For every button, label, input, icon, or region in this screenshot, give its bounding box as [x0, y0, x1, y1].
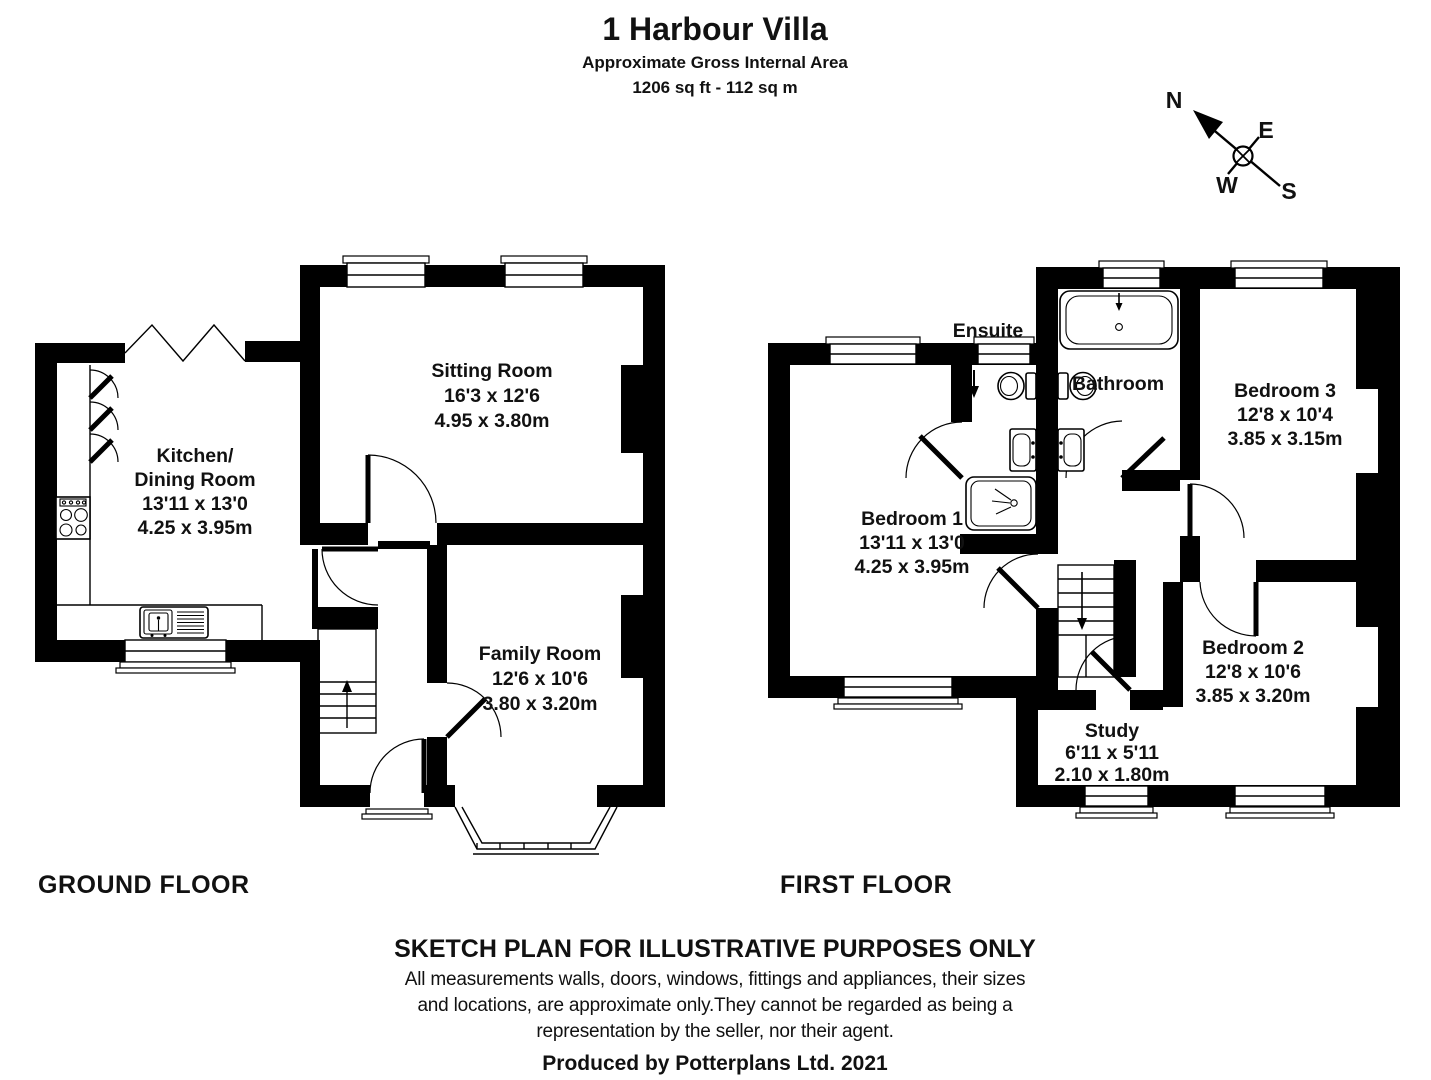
- kitchen-dimensions-imperial: 13'11 x 13'0: [142, 493, 248, 515]
- break-line: [125, 325, 245, 361]
- first-floor-room-labels: Ensuite Bathroom Bedroom 1 13'11 x 13'0 …: [855, 320, 1343, 786]
- study-dimensions-metric: 2.10 x 1.80m: [1055, 764, 1170, 786]
- compass-east-label: E: [1258, 117, 1273, 143]
- bedroom3-label: Bedroom 3: [1234, 380, 1336, 402]
- sitting-room-dimensions-metric: 4.95 x 3.80m: [435, 410, 550, 432]
- bedroom3-dimensions-metric: 3.85 x 3.15m: [1228, 428, 1343, 450]
- ground-floor-walls: [35, 265, 665, 807]
- page-title: 1 Harbour Villa: [602, 11, 827, 47]
- stairs-down-icon: [1058, 565, 1114, 677]
- kitchen-dimensions-metric: 4.25 x 3.95m: [138, 517, 253, 539]
- stove-icon: [56, 497, 90, 539]
- study-dimensions-imperial: 6'11 x 5'11: [1065, 742, 1159, 764]
- sitting-room-dimensions-imperial: 16'3 x 12'6: [444, 385, 540, 407]
- bedroom2-dimensions-metric: 3.85 x 3.20m: [1196, 685, 1311, 707]
- disclaimer-title: SKETCH PLAN FOR ILLUSTRATIVE PURPOSES ON…: [394, 935, 1036, 963]
- bay-window: [455, 807, 617, 854]
- compass-north-label: N: [1166, 87, 1183, 113]
- disclaimer-line2: and locations, are approximate only.They…: [417, 995, 1013, 1016]
- kitchen-label: Kitchen/: [157, 445, 235, 467]
- footer: SKETCH PLAN FOR ILLUSTRATIVE PURPOSES ON…: [394, 935, 1036, 1075]
- compass-icon: N E W S: [1166, 87, 1297, 204]
- bathtub-icon: [1060, 291, 1178, 349]
- family-room-dimensions-imperial: 12'6 x 10'6: [492, 668, 588, 690]
- ground-floor-plan: Kitchen/ Dining Room 13'11 x 13'0 4.25 x…: [35, 256, 665, 899]
- ensuite-basin-icon: [1010, 429, 1036, 471]
- bathroom-basin-icon: [1058, 429, 1084, 471]
- compass-south-label: S: [1281, 178, 1296, 204]
- producer-credit: Produced by Potterplans Ltd. 2021: [542, 1052, 888, 1075]
- kitchen-label-2: Dining Room: [134, 469, 255, 491]
- ground-floor-doors: [322, 455, 501, 819]
- disclaimer-line3: representation by the seller, nor their …: [536, 1021, 893, 1042]
- bedroom1-dimensions-imperial: 13'11 x 13'0: [859, 532, 965, 554]
- bathroom-label: Bathroom: [1072, 373, 1164, 395]
- compass-west-label: W: [1216, 172, 1238, 198]
- first-floor-label: FIRST FLOOR: [780, 871, 952, 899]
- shower-icon: [966, 477, 1036, 530]
- ground-floor-label: GROUND FLOOR: [38, 871, 250, 899]
- ensuite-toilet-icon: [998, 373, 1036, 400]
- header-area: 1206 sq ft - 112 sq m: [632, 78, 797, 97]
- bedroom1-dimensions-metric: 4.25 x 3.95m: [855, 556, 970, 578]
- sink-icon: [140, 607, 208, 638]
- ensuite-label: Ensuite: [953, 320, 1024, 342]
- bedroom2-dimensions-imperial: 12'8 x 10'6: [1205, 661, 1301, 683]
- study-label: Study: [1085, 720, 1139, 742]
- disclaimer-line1: All measurements walls, doors, windows, …: [405, 969, 1026, 990]
- cupboard-doors: [90, 370, 118, 462]
- header: 1 Harbour Villa Approximate Gross Intern…: [582, 11, 848, 97]
- sitting-room-label: Sitting Room: [431, 360, 552, 382]
- floorplan-drawing: 1 Harbour Villa Approximate Gross Intern…: [0, 0, 1431, 1080]
- family-room-label: Family Room: [479, 643, 601, 665]
- first-floor-plan: Ensuite Bathroom Bedroom 1 13'11 x 13'0 …: [768, 261, 1400, 899]
- header-subtitle: Approximate Gross Internal Area: [582, 53, 848, 72]
- floorplan-page: 1 Harbour Villa Approximate Gross Intern…: [0, 0, 1431, 1080]
- bedroom3-dimensions-imperial: 12'8 x 10'4: [1237, 404, 1333, 426]
- bedroom1-label: Bedroom 1: [861, 508, 963, 530]
- family-room-dimensions-metric: 3.80 x 3.20m: [483, 693, 598, 715]
- stairs-icon: [318, 629, 376, 733]
- bedroom2-label: Bedroom 2: [1202, 637, 1304, 659]
